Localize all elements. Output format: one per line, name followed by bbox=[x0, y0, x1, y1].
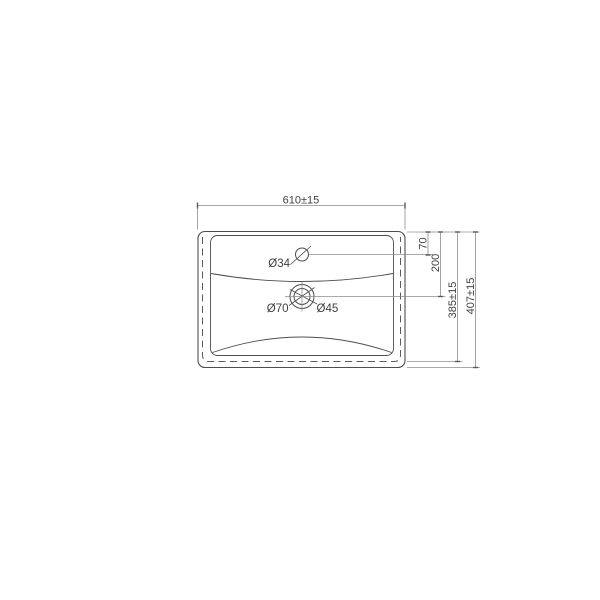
faucet-offset-dim-label: 70 bbox=[418, 237, 430, 249]
washbasin-technical-drawing: 610±15 70 200 385±15 407±15 Ø34 Ø70 Ø45 bbox=[0, 0, 600, 600]
drain-offset-dim-label: 200 bbox=[430, 254, 442, 272]
overall-depth-dim-label: 407±15 bbox=[465, 278, 477, 315]
sink-outline-group bbox=[198, 232, 405, 368]
dimension-ticks-group bbox=[198, 203, 479, 368]
faucet-hole-group bbox=[291, 246, 312, 265]
basin-back-ledge-curve bbox=[211, 274, 393, 282]
faucet-hole-diameter-label: Ø34 bbox=[268, 258, 290, 270]
hidden-underside-outline bbox=[203, 237, 401, 362]
hidden-depth-dim-label: 385±15 bbox=[447, 282, 459, 319]
dimension-labels-group: 610±15 70 200 385±15 407±15 Ø34 Ø70 Ø45 bbox=[267, 195, 477, 319]
dimension-lines-group bbox=[198, 203, 481, 368]
drain-outer-diameter-label: Ø70 bbox=[267, 303, 289, 315]
basin-bottom-curve bbox=[213, 337, 392, 353]
faucet-hole-leader-line bbox=[291, 246, 312, 265]
width-dim-label: 610±15 bbox=[283, 195, 320, 207]
drawing-canvas: 610±15 70 200 385±15 407±15 Ø34 Ø70 Ø45 bbox=[0, 0, 600, 600]
drain-waste-diameter-label: Ø45 bbox=[317, 303, 339, 315]
